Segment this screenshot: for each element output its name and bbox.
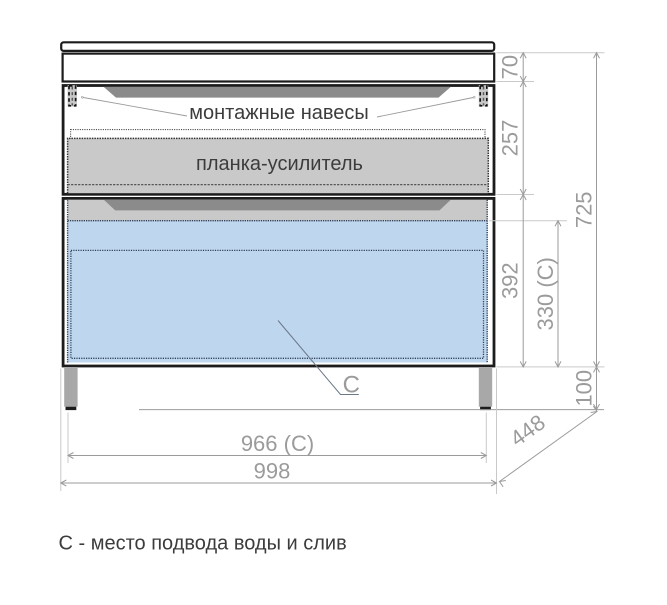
svg-text:планка-усилитель: планка-усилитель	[196, 153, 363, 175]
svg-text:C: C	[343, 372, 360, 399]
svg-text:100: 100	[572, 370, 597, 407]
svg-text:998: 998	[254, 459, 291, 484]
svg-text:С - место подвода воды и слив: С - место подвода воды и слив	[59, 533, 347, 555]
svg-text:70: 70	[498, 55, 523, 79]
svg-text:257: 257	[498, 120, 523, 157]
svg-text:966 (С): 966 (С)	[241, 431, 314, 456]
svg-text:725: 725	[572, 191, 597, 228]
svg-text:330 (С): 330 (С)	[533, 257, 558, 330]
svg-text:392: 392	[498, 262, 523, 299]
svg-text:монтажные навесы: монтажные навесы	[189, 102, 369, 124]
